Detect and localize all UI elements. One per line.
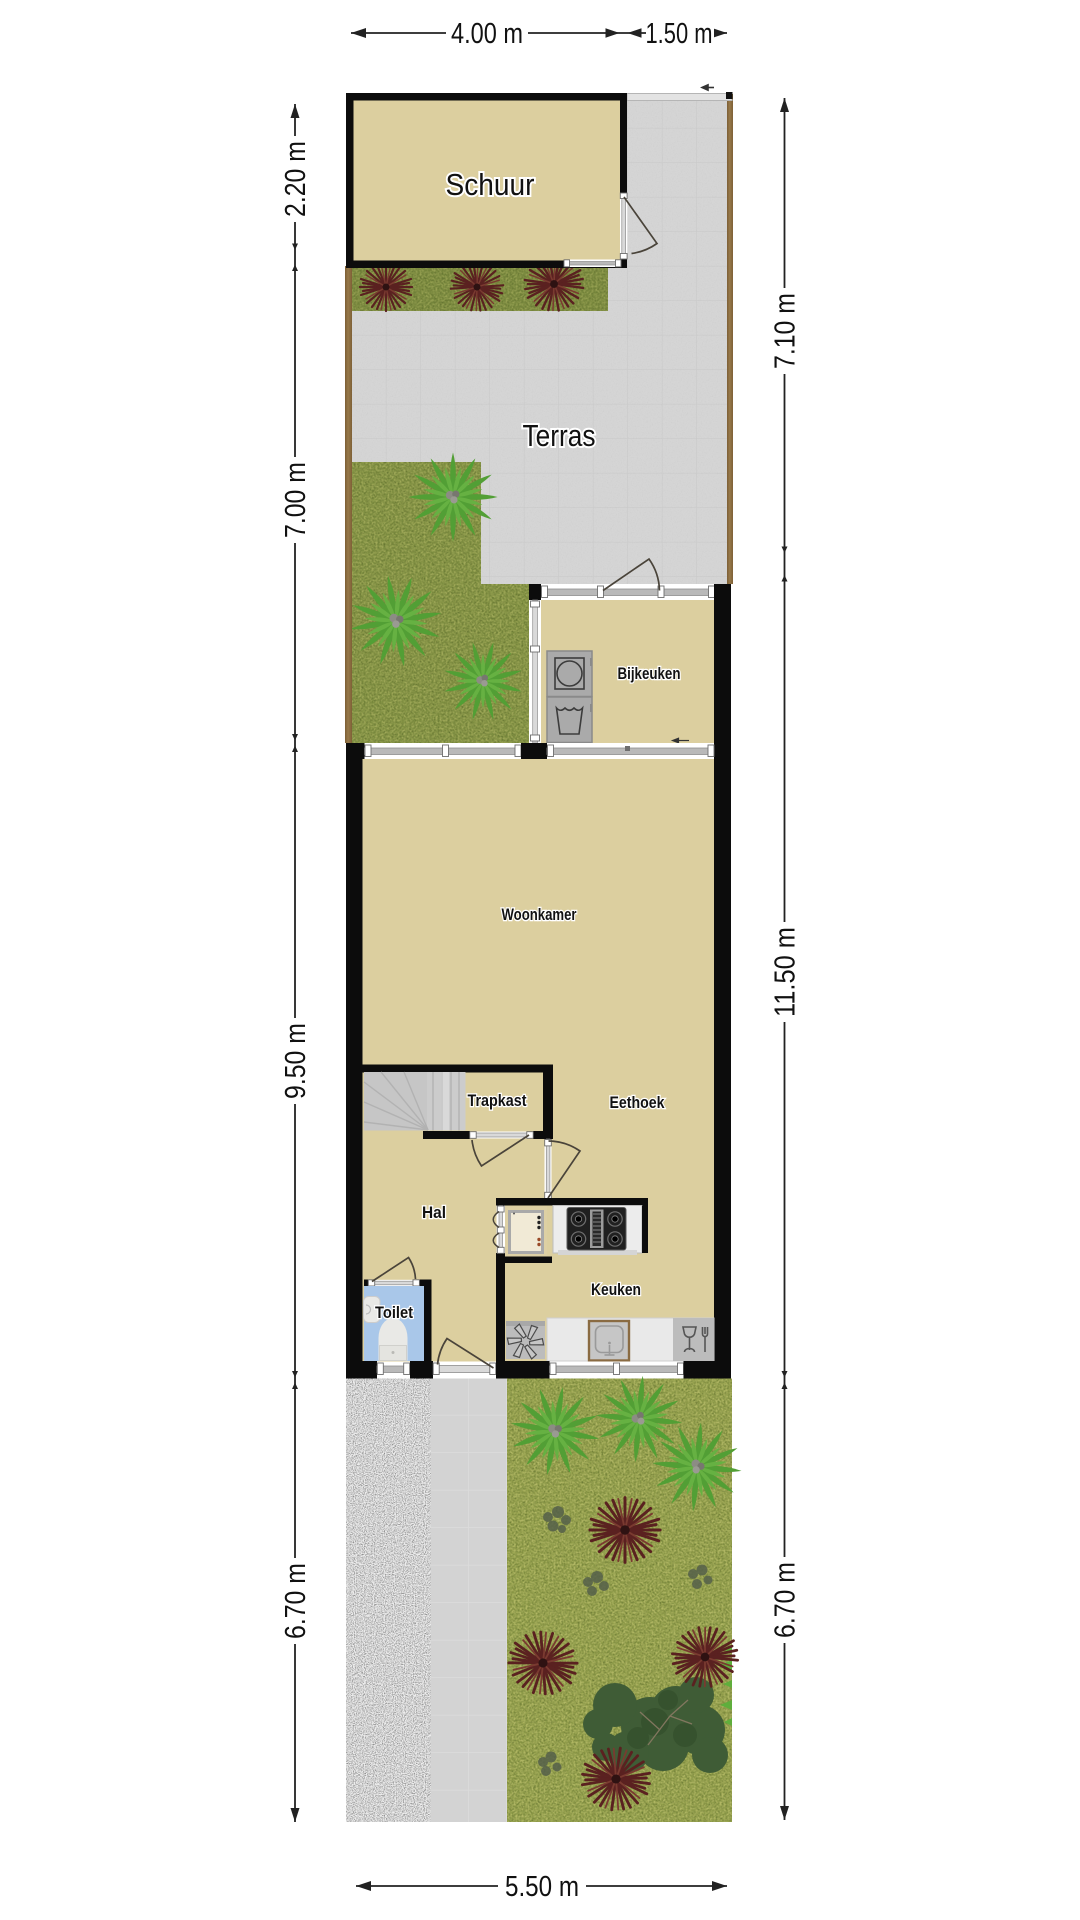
- svg-text:Hal: Hal: [422, 1204, 446, 1222]
- svg-text:2.20 m: 2.20 m: [280, 141, 312, 217]
- svg-text:Terras: Terras: [523, 418, 596, 453]
- svg-text:6.70 m: 6.70 m: [280, 1563, 312, 1639]
- svg-text:Schuur: Schuur: [446, 167, 535, 202]
- svg-text:4.00 m: 4.00 m: [451, 18, 523, 50]
- svg-text:7.00 m: 7.00 m: [280, 462, 312, 538]
- svg-text:5.50 m: 5.50 m: [505, 1871, 579, 1903]
- svg-text:Bijkeuken: Bijkeuken: [618, 665, 681, 683]
- svg-text:7.10 m: 7.10 m: [770, 293, 802, 369]
- svg-text:Keuken: Keuken: [591, 1281, 641, 1299]
- svg-text:Woonkamer: Woonkamer: [502, 906, 577, 924]
- svg-text:1.50 m: 1.50 m: [646, 18, 713, 50]
- svg-text:Eethoek: Eethoek: [610, 1094, 666, 1112]
- svg-text:Trapkast: Trapkast: [468, 1092, 527, 1110]
- svg-text:11.50 m: 11.50 m: [770, 927, 802, 1017]
- svg-text:Toilet: Toilet: [375, 1304, 413, 1322]
- svg-text:9.50 m: 9.50 m: [280, 1023, 312, 1099]
- svg-text:6.70 m: 6.70 m: [770, 1562, 802, 1638]
